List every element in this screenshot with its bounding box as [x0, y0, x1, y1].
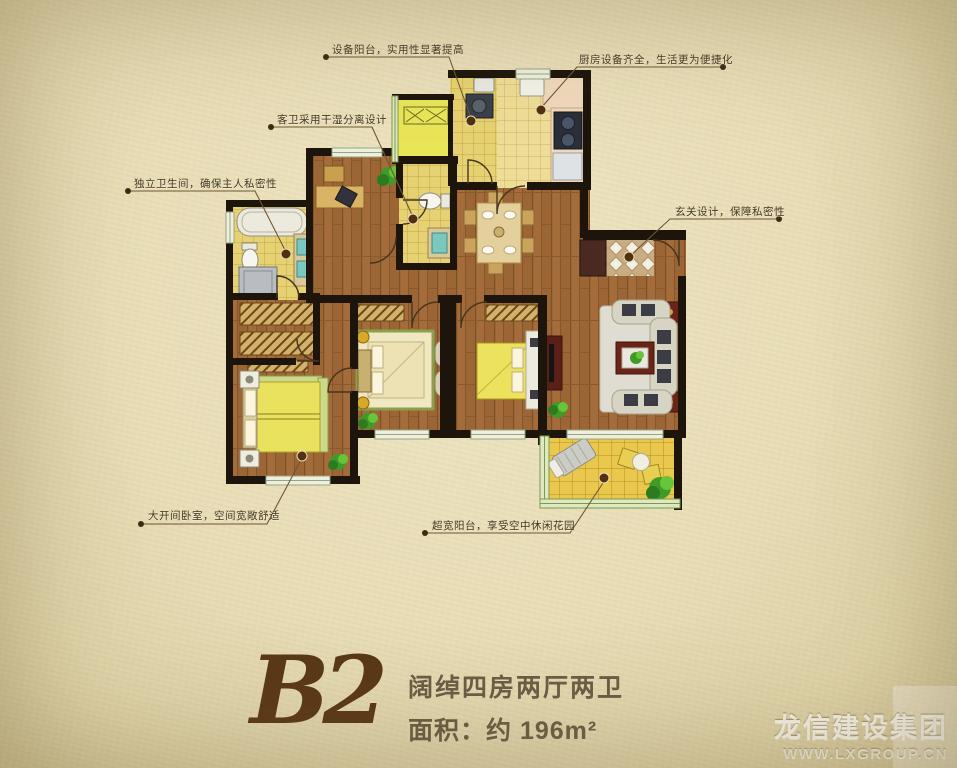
wardrobe — [356, 305, 404, 321]
wardrobe — [486, 305, 538, 321]
window — [567, 430, 663, 439]
unit-subtitle: 阔绰四房两厅两卫 面积：约 196m² — [408, 668, 624, 747]
annotation-master-bath: 独立卫生间，确保主人私密性 — [134, 176, 277, 191]
window — [471, 430, 525, 439]
annotation-equipment-balcony: 设备阳台，实用性显著提高 — [332, 42, 464, 57]
shoe-cabinet — [580, 240, 606, 276]
watermark-company: 龙信建设集团 — [774, 706, 948, 745]
unit-area: 面积：约 196m² — [408, 711, 624, 747]
window — [516, 69, 550, 79]
brochure-page: 设备阳台，实用性显著提高 厨房设备齐全，生活更为便捷化 客卫采用干湿分离设计 独… — [0, 0, 957, 768]
toilet — [419, 193, 441, 209]
unit-description: 阔绰四房两厅两卫 — [408, 668, 624, 704]
round-table — [633, 454, 650, 471]
bedroom3-furniture — [477, 305, 543, 409]
unit-label: B2 — [250, 640, 381, 743]
window — [226, 212, 234, 243]
watermark-website: WWW.LXGROUP.CN — [774, 746, 948, 763]
watermark: 龙信建设集团 WWW.LXGROUP.CN — [774, 706, 948, 763]
window — [332, 148, 382, 157]
tv-cabinet — [546, 336, 562, 390]
annotation-guest-bath: 客卫采用干湿分离设计 — [277, 112, 387, 127]
kitchen-sink — [520, 79, 544, 96]
kitchen-appliance — [553, 153, 582, 180]
annotation-entry: 玄关设计，保障私密性 — [675, 204, 785, 219]
window — [392, 96, 398, 162]
window — [266, 476, 330, 485]
annotation-kitchen: 厨房设备齐全，生活更为便捷化 — [579, 52, 733, 67]
floor-equipment-balcony — [394, 96, 452, 161]
annotation-master-bedroom: 大开间卧室，空间宽敞舒适 — [148, 508, 280, 523]
bed — [256, 382, 320, 452]
master-bedroom-furniture — [240, 360, 328, 467]
window — [375, 430, 429, 439]
stove — [554, 112, 582, 149]
annotation-balcony: 超宽阳台，享受空中休闲花园 — [432, 518, 575, 533]
title-block: B2 阔绰四房两厅两卫 面积：约 196m² — [250, 644, 770, 764]
equipment-rack — [404, 107, 448, 124]
